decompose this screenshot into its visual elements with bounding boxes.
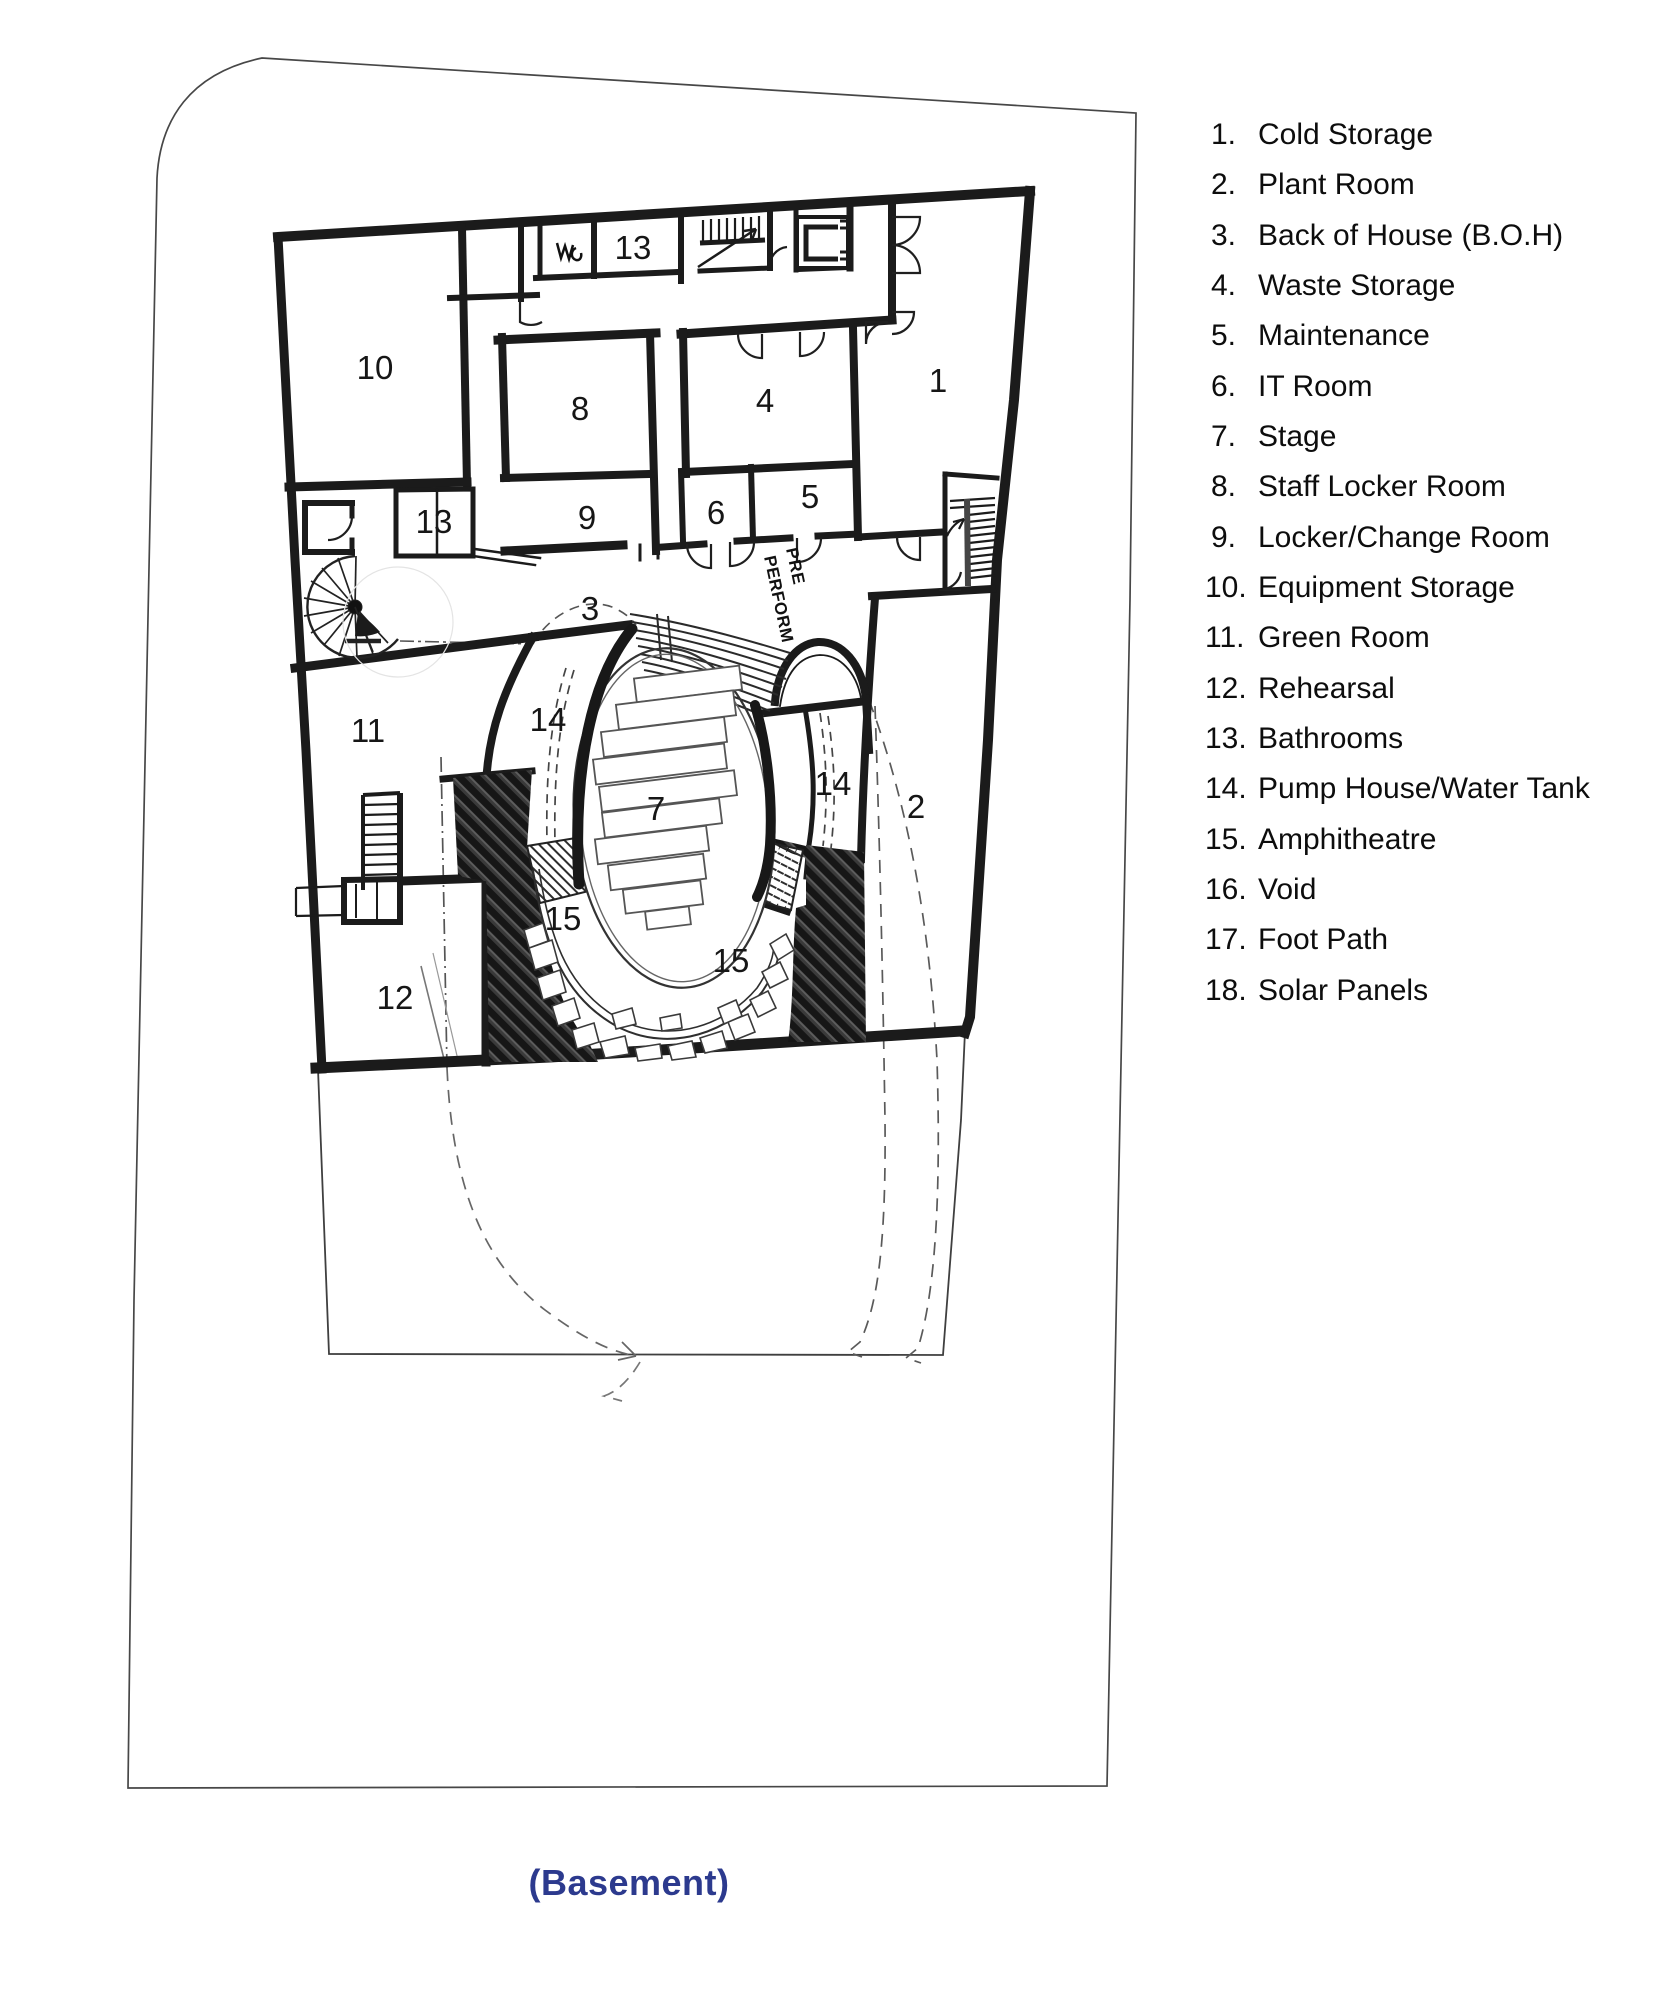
svg-text:14: 14 — [815, 765, 852, 802]
svg-text:1: 1 — [929, 362, 947, 399]
svg-text:Foot Path: Foot Path — [1258, 923, 1388, 956]
svg-text:16.: 16. — [1205, 873, 1247, 906]
svg-text:Solar Panels: Solar Panels — [1258, 974, 1428, 1007]
svg-text:15: 15 — [713, 942, 750, 979]
svg-text:Equipment Storage: Equipment Storage — [1258, 571, 1515, 604]
svg-text:Green Room: Green Room — [1258, 621, 1430, 654]
svg-text:9.: 9. — [1211, 521, 1236, 554]
svg-text:Back of House (B.O.H): Back of House (B.O.H) — [1258, 219, 1563, 252]
svg-text:Amphitheatre: Amphitheatre — [1258, 823, 1436, 856]
svg-text:4: 4 — [756, 382, 774, 419]
svg-text:Void: Void — [1258, 873, 1316, 906]
svg-text:10: 10 — [357, 349, 394, 386]
svg-text:14: 14 — [530, 701, 567, 738]
svg-text:11: 11 — [351, 712, 385, 749]
svg-text:13.: 13. — [1205, 722, 1247, 755]
svg-text:Staff Locker Room: Staff Locker Room — [1258, 470, 1506, 503]
svg-text:Maintenance: Maintenance — [1258, 319, 1430, 352]
svg-text:17.: 17. — [1205, 923, 1247, 956]
svg-text:6: 6 — [707, 494, 725, 531]
svg-text:9: 9 — [578, 499, 596, 536]
svg-text:Cold Storage: Cold Storage — [1258, 118, 1433, 151]
svg-text:Waste Storage: Waste Storage — [1258, 269, 1455, 302]
svg-text:Stage: Stage — [1258, 420, 1336, 453]
svg-text:13: 13 — [416, 503, 453, 540]
svg-text:7: 7 — [647, 790, 665, 827]
svg-text:18.: 18. — [1205, 974, 1247, 1007]
svg-text:11.: 11. — [1205, 621, 1244, 654]
svg-text:7.: 7. — [1211, 420, 1236, 453]
svg-text:13: 13 — [615, 229, 652, 266]
svg-text:15: 15 — [545, 900, 582, 937]
svg-text:15.: 15. — [1205, 823, 1247, 856]
svg-text:IT Room: IT Room — [1258, 370, 1372, 403]
svg-text:14.: 14. — [1205, 772, 1247, 805]
svg-text:1.: 1. — [1211, 118, 1236, 151]
svg-text:5.: 5. — [1211, 319, 1236, 352]
svg-text:Rehearsal: Rehearsal — [1258, 672, 1395, 705]
svg-text:Plant Room: Plant Room — [1258, 168, 1415, 201]
svg-text:12.: 12. — [1205, 672, 1247, 705]
svg-text:2: 2 — [907, 788, 925, 825]
svg-text:12: 12 — [377, 979, 414, 1016]
svg-text:2.: 2. — [1211, 168, 1236, 201]
svg-text:8: 8 — [571, 390, 589, 427]
svg-text:6.: 6. — [1211, 370, 1236, 403]
svg-text:8.: 8. — [1211, 470, 1236, 503]
svg-text:3: 3 — [581, 590, 599, 627]
svg-text:Bathrooms: Bathrooms — [1258, 722, 1403, 755]
svg-text:Pump House/Water Tank: Pump House/Water Tank — [1258, 772, 1591, 805]
svg-text:(Basement): (Basement) — [528, 1862, 729, 1903]
svg-text:4.: 4. — [1211, 269, 1236, 302]
svg-text:10.: 10. — [1205, 571, 1247, 604]
svg-text:Locker/Change Room: Locker/Change Room — [1258, 521, 1550, 554]
svg-text:3.: 3. — [1211, 219, 1236, 252]
svg-text:5: 5 — [801, 478, 819, 515]
